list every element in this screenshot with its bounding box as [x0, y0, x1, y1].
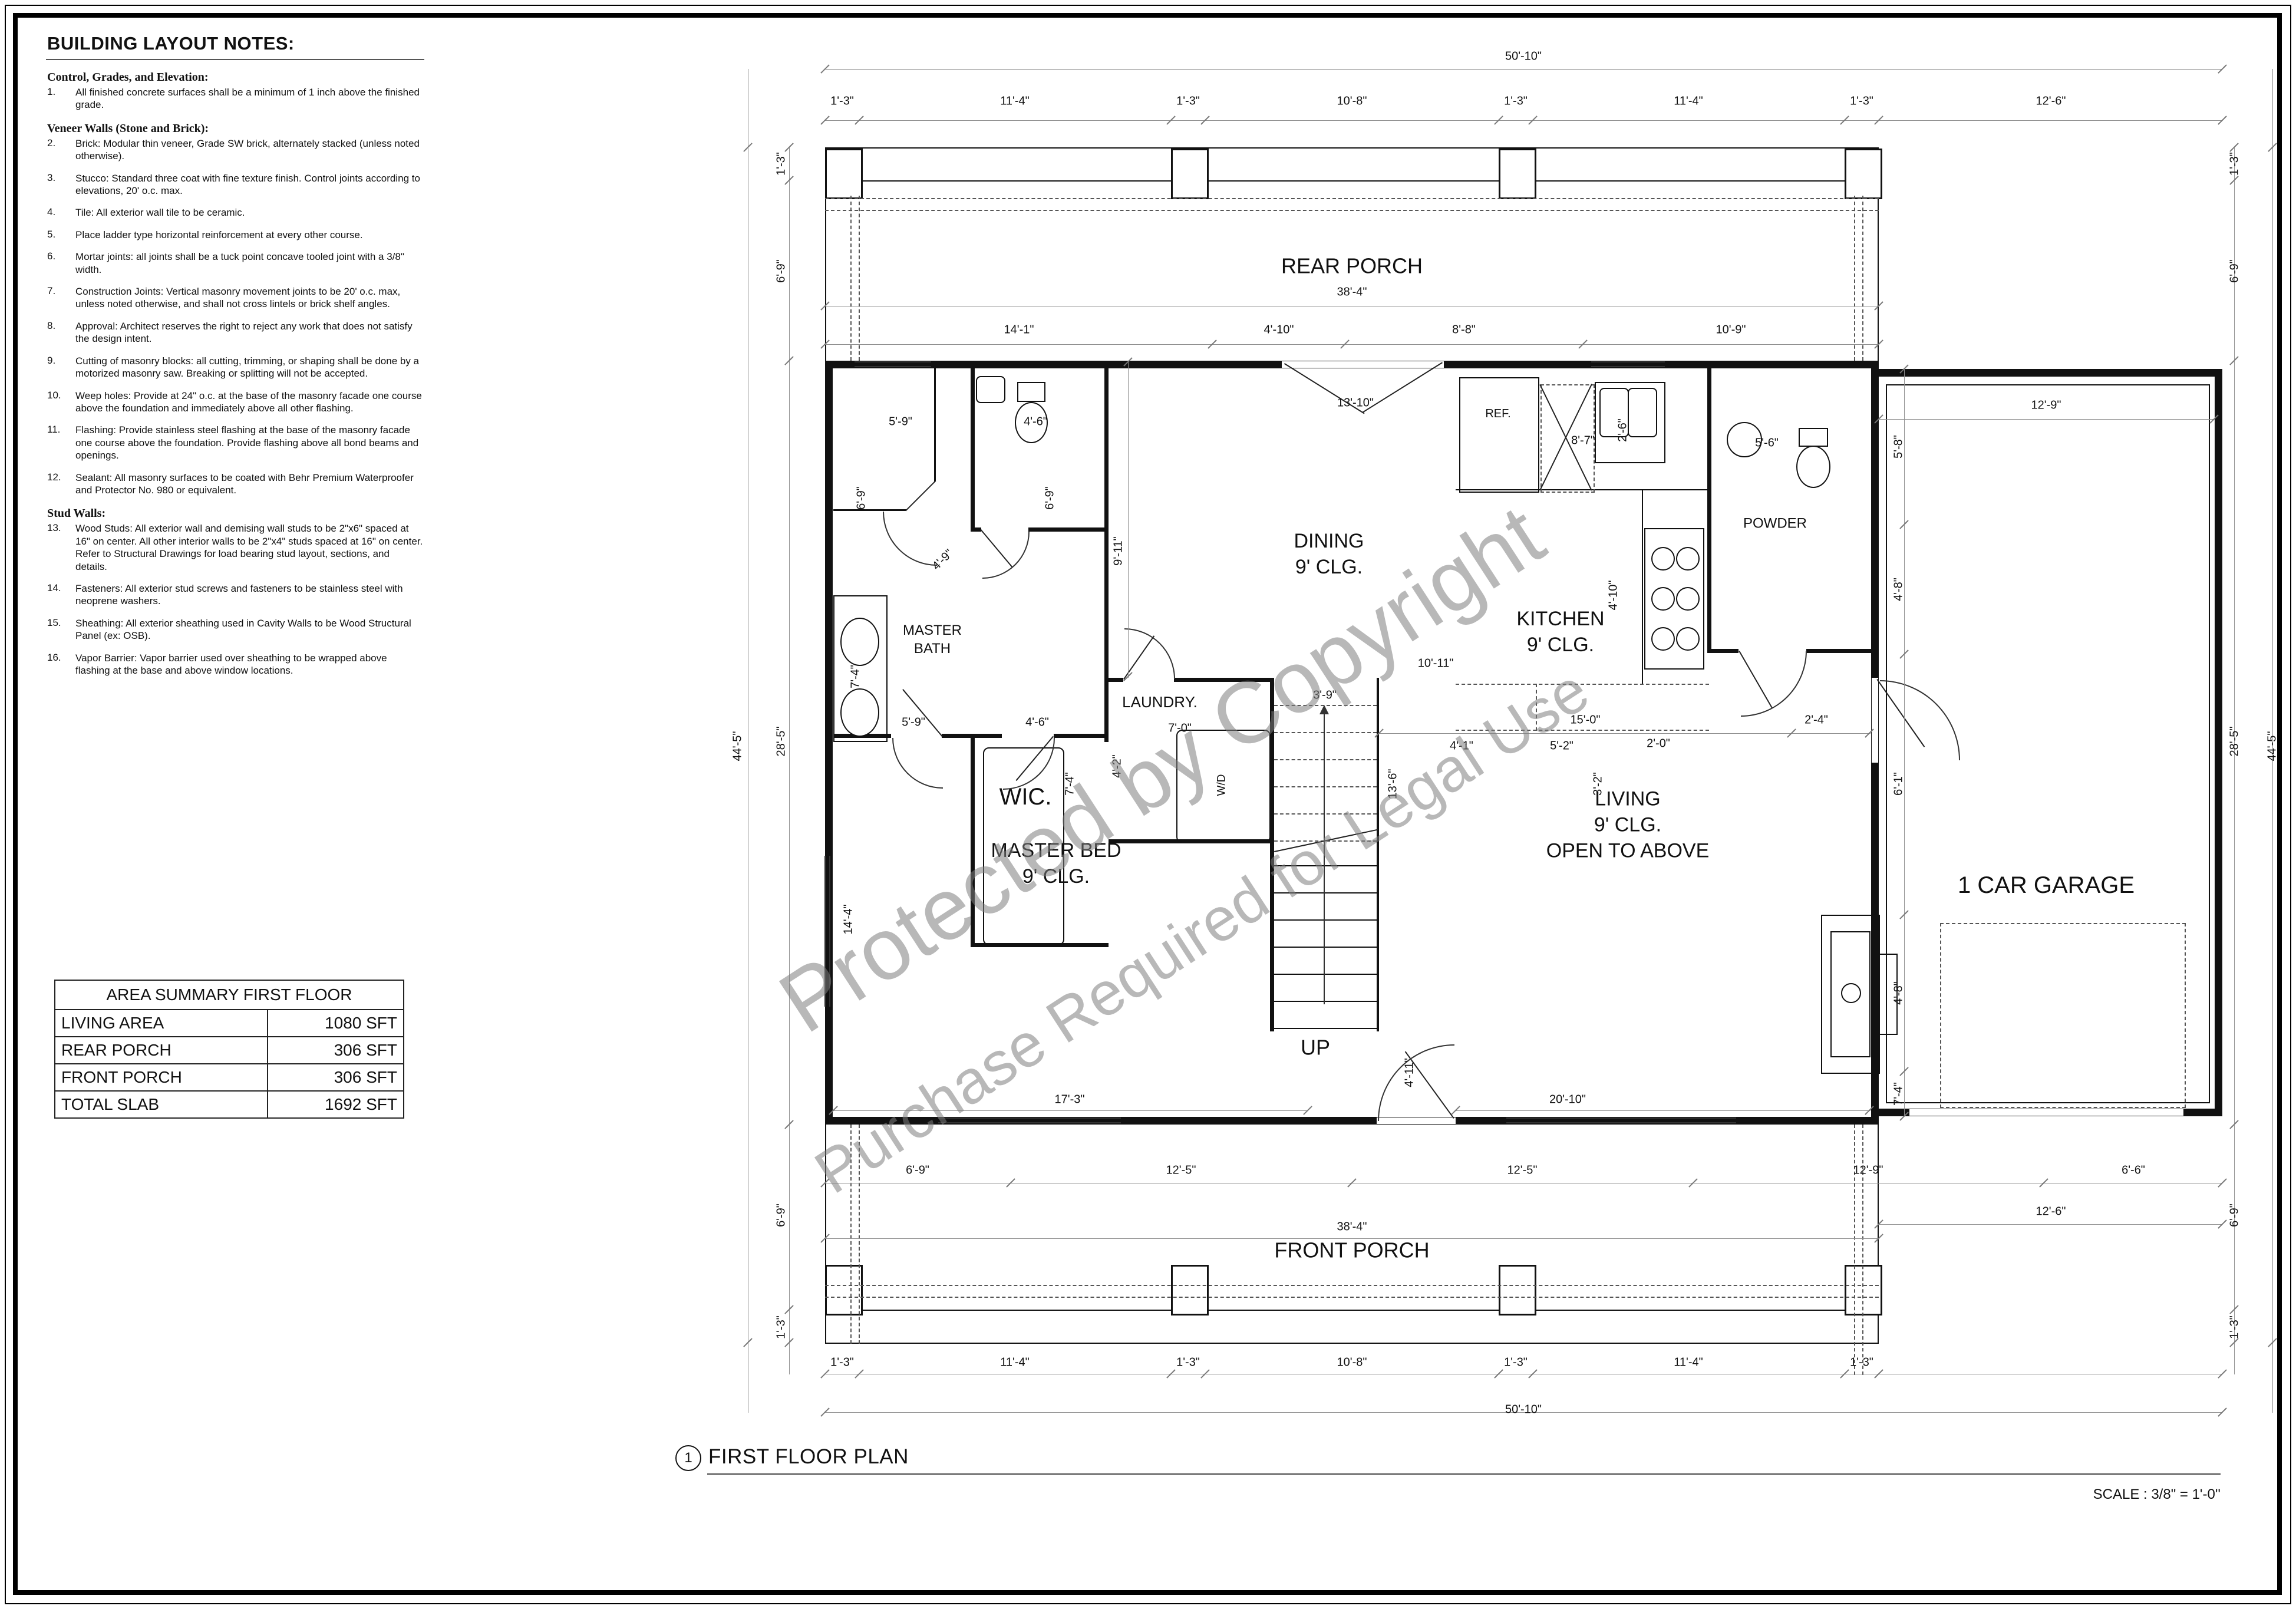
- table-row: TOTAL SLAB 1692 SFT: [55, 1091, 404, 1118]
- area-summary-table: AREA SUMMARY FIRST FLOOR LIVING AREA 108…: [54, 980, 404, 1119]
- dim-label: 5'-6": [1755, 437, 1779, 450]
- area-value: 306 SFT: [268, 1037, 404, 1064]
- note-text: Wood Studs: All exterior wall and demisi…: [75, 522, 423, 573]
- stove-burner: [1676, 547, 1700, 571]
- note-text: Fasteners: All exterior stud screws and …: [75, 582, 423, 608]
- wall-garage-right: [2215, 369, 2222, 1116]
- dim-label: 12'-5": [1507, 1164, 1538, 1178]
- dim-label: 1'-3": [775, 1315, 789, 1339]
- dimension-line: [825, 1183, 2222, 1183]
- dim-label: 28'-5": [2228, 727, 2242, 757]
- room-label-kitchen: KITCHEN 9' CLG.: [1516, 606, 1604, 658]
- dim-label: 11'-4": [1674, 95, 1703, 108]
- dim-label: 20'-10": [1549, 1093, 1586, 1107]
- dashed-beam-line: [825, 1297, 1879, 1298]
- note-number: 16.: [47, 652, 75, 677]
- porch-edge-line: [825, 1310, 1879, 1311]
- note-item: 5.Place ladder type horizontal reinforce…: [47, 229, 428, 241]
- note-number: 11.: [47, 424, 75, 461]
- window: [1506, 1117, 1736, 1119]
- notes-body: Control, Grades, and Elevation:1.All fin…: [46, 71, 428, 677]
- dim-label: 1'-3": [830, 95, 854, 108]
- toilet-bowl: [1796, 446, 1830, 488]
- vanity-sink: [840, 688, 879, 737]
- dimension-line: [2234, 147, 2235, 1374]
- porch-column: [1845, 149, 1882, 199]
- dim-label: 4'-11": [1403, 1058, 1417, 1087]
- porch-edge-line: [825, 180, 1879, 182]
- fireplace-flue: [1841, 983, 1861, 1003]
- note-text: Sheathing: All exterior sheathing used i…: [75, 617, 423, 642]
- dim-label: 11'-4": [1000, 95, 1029, 108]
- title-underline: [707, 1473, 2221, 1475]
- dimension-line: [825, 1238, 1879, 1239]
- dim-label: 50'-10": [1505, 1403, 1542, 1417]
- notes-title: BUILDING LAYOUT NOTES:: [46, 33, 424, 60]
- dim-label: 6'-9": [1044, 486, 1057, 510]
- dim-label: 1'-3": [830, 1356, 854, 1370]
- dim-label: 6'-9": [855, 486, 869, 510]
- sheet-number-badge: 1: [675, 1445, 701, 1471]
- note-text: Brick: Modular thin veneer, Grade SW bri…: [75, 137, 423, 163]
- dim-label: 1'-3": [1850, 95, 1873, 108]
- note-item: 6.Mortar joints: all joints shall be a t…: [47, 250, 428, 276]
- wc-sink: [976, 376, 1005, 403]
- dim-label: 11'-4": [1674, 1356, 1703, 1370]
- stair-tread-dashed: [1274, 759, 1377, 760]
- sink-basin: [1628, 388, 1657, 437]
- note-item: 7.Construction Joints: Vertical masonry …: [47, 285, 428, 311]
- note-text: Vapor Barrier: Vapor barrier used over s…: [75, 652, 423, 677]
- note-text: Weep holes: Provide at 24" o.c. at the b…: [75, 390, 423, 415]
- stair-tread: [1274, 974, 1377, 975]
- porch-column: [825, 1265, 863, 1315]
- wall-powder-bottom: [1707, 649, 1739, 653]
- note-text: All finished concrete surfaces shall be …: [75, 86, 423, 111]
- note-number: 15.: [47, 617, 75, 642]
- dim-label: 1'-3": [1504, 95, 1528, 108]
- note-number: 4.: [47, 206, 75, 219]
- stove-burner: [1676, 587, 1700, 611]
- dim-label: 12'-9": [2031, 399, 2061, 413]
- area-label: LIVING AREA: [55, 1010, 268, 1037]
- wall-garage-top: [1871, 369, 2222, 377]
- dim-label: 12'-6": [2036, 95, 2066, 108]
- dim-label: 7'-4": [1892, 1082, 1906, 1106]
- stove-burner: [1676, 627, 1700, 651]
- stove-burner: [1651, 627, 1675, 651]
- dim-label: 4'-10": [1607, 581, 1621, 611]
- dim-label: 6'-9": [2228, 259, 2242, 283]
- area-value: 1080 SFT: [268, 1010, 404, 1037]
- dimension-line: [1879, 419, 2214, 420]
- wall-wc-bottom: [1028, 527, 1109, 532]
- note-item: 8.Approval: Architect reserves the right…: [47, 320, 428, 345]
- room-label-dining: DINING 9' CLG.: [1294, 528, 1364, 580]
- porch-column: [1171, 149, 1209, 199]
- toilet-tank-powder: [1799, 428, 1828, 447]
- dimension-line: [825, 69, 2222, 70]
- dim-label: 1'-3": [1176, 95, 1200, 108]
- dimension-line: [748, 69, 748, 1413]
- note-item: 2.Brick: Modular thin veneer, Grade SW b…: [47, 137, 428, 163]
- dim-label: 17'-3": [1055, 1093, 1085, 1107]
- area-value: 306 SFT: [268, 1064, 404, 1091]
- dimension-line: [825, 306, 1879, 306]
- dimension-line: [1879, 1224, 2222, 1225]
- note-number: 12.: [47, 472, 75, 497]
- dashed-beam-line: [825, 1285, 1879, 1286]
- dim-label: 38'-4": [1337, 1221, 1367, 1234]
- porch-column: [825, 149, 863, 199]
- drawing-title: FIRST FLOOR PLAN: [708, 1445, 909, 1469]
- porch-column: [1845, 1265, 1882, 1315]
- dim-label: 28'-5": [775, 727, 789, 757]
- stair-tread: [1274, 919, 1377, 921]
- refrigerator: [1459, 377, 1539, 493]
- note-text: Stucco: Standard three coat with fine te…: [75, 172, 423, 197]
- dim-label: 13'-10": [1337, 397, 1374, 410]
- table-row: REAR PORCH 306 SFT: [55, 1037, 404, 1064]
- dashed-post-line: [859, 196, 860, 361]
- opening-dining-doors: [1282, 361, 1444, 368]
- note-text: Cutting of masonry blocks: all cutting, …: [75, 355, 423, 380]
- room-label-powder: POWDER: [1743, 514, 1807, 532]
- dashed-beam-line: [825, 210, 1879, 211]
- dim-label: 10'-8": [1337, 95, 1367, 108]
- vanity-sink: [840, 618, 879, 666]
- dim-label: 44'-5": [731, 731, 745, 761]
- dim-label: 2'-0": [1647, 737, 1670, 751]
- note-text: Flashing: Provide stainless steel flashi…: [75, 424, 423, 461]
- dimension-line: [1128, 362, 1129, 678]
- dim-label: 10'-9": [1716, 324, 1746, 337]
- dim-label: 6'-1": [1892, 772, 1906, 796]
- dashed-post-line: [1854, 196, 1855, 361]
- dimension-line: [825, 344, 1879, 345]
- porch-edge-line: [1642, 490, 1643, 684]
- dim-label: 6'-9": [906, 1164, 929, 1178]
- area-label: REAR PORCH: [55, 1037, 268, 1064]
- opening-garage-door: [1909, 1109, 2183, 1116]
- window: [1591, 366, 1665, 367]
- note-number: 8.: [47, 320, 75, 345]
- note-text: Sealant: All masonry surfaces to be coat…: [75, 472, 423, 497]
- dashed-post-line: [1862, 1125, 1863, 1375]
- stove-burner: [1651, 587, 1675, 611]
- window: [1506, 1122, 1736, 1123]
- dim-label: 1'-3": [1850, 1356, 1873, 1370]
- note-item: 11.Flashing: Provide stainless steel fla…: [47, 424, 428, 461]
- note-item: 10.Weep holes: Provide at 24" o.c. at th…: [47, 390, 428, 415]
- porch-edge-line: [825, 1343, 1879, 1344]
- dimension-line: [825, 120, 2222, 121]
- porch-column: [1499, 149, 1536, 199]
- table-row: LIVING AREA 1080 SFT: [55, 1010, 404, 1037]
- area-label: TOTAL SLAB: [55, 1091, 268, 1118]
- dim-label: 12'-6": [2036, 1205, 2066, 1219]
- note-text: Construction Joints: Vertical masonry mo…: [75, 285, 423, 311]
- wall-bath-right: [1104, 361, 1109, 742]
- note-number: 3.: [47, 172, 75, 197]
- note-number: 13.: [47, 522, 75, 573]
- dim-label: 14'-1": [1004, 324, 1034, 337]
- wall-shower-front: [833, 509, 906, 511]
- table-row: FRONT PORCH 306 SFT: [55, 1064, 404, 1091]
- stair-tread: [1274, 1028, 1377, 1029]
- stair-tread: [1274, 1001, 1377, 1002]
- dim-label: 3'-2": [1592, 772, 1605, 796]
- wall-powder-left: [1707, 361, 1711, 653]
- stairs-up-label: UP: [1301, 1034, 1330, 1062]
- dim-label: 12'-9": [1853, 1164, 1883, 1178]
- note-number: 7.: [47, 285, 75, 311]
- dim-label: 44'-5": [2266, 731, 2279, 761]
- porch-edge-line: [825, 147, 1879, 149]
- garage-door-zone: [1940, 923, 2186, 1108]
- wall-bath-bottom: [1054, 734, 1109, 738]
- note-item: 4.Tile: All exterior wall tile to be cer…: [47, 206, 428, 219]
- dim-label: 8'-7": [1571, 434, 1595, 448]
- dim-label: 1'-3": [1176, 1356, 1200, 1370]
- window: [1591, 361, 1665, 362]
- note-text: Tile: All exterior wall tile to be ceram…: [75, 206, 423, 219]
- room-label-living: LIVING 9' CLG. OPEN TO ABOVE: [1546, 786, 1710, 865]
- room-label-master-bath: MASTER BATH: [903, 621, 962, 658]
- wall-laundry-top: [1109, 678, 1123, 682]
- window: [855, 361, 931, 362]
- wall-shower-side: [934, 361, 936, 482]
- note-item: 9.Cutting of masonry blocks: all cutting…: [47, 355, 428, 380]
- dim-label: 4'-8": [1892, 578, 1906, 601]
- dashed-beam-line: [825, 198, 1879, 199]
- note-item: 15.Sheathing: All exterior sheathing use…: [47, 617, 428, 642]
- porch-column: [1499, 1265, 1536, 1315]
- dim-label: 38'-4": [1337, 286, 1367, 299]
- note-number: 1.: [47, 86, 75, 111]
- building-layout-notes: BUILDING LAYOUT NOTES: Control, Grades, …: [46, 33, 428, 686]
- window: [855, 366, 931, 367]
- note-number: 14.: [47, 582, 75, 608]
- dim-label: 6'-9": [2228, 1204, 2242, 1227]
- dim-label: 6'-6": [2122, 1164, 2145, 1178]
- toilet-tank-wc: [1017, 382, 1045, 402]
- note-item: 12.Sealant: All masonry surfaces to be c…: [47, 472, 428, 497]
- notes-section-heading: Control, Grades, and Elevation:: [47, 71, 428, 84]
- dim-label: 7'-4": [849, 665, 863, 688]
- note-number: 5.: [47, 229, 75, 241]
- wall-wc-left: [971, 361, 975, 532]
- notes-section-heading: Veneer Walls (Stone and Brick):: [47, 122, 428, 136]
- note-number: 2.: [47, 137, 75, 163]
- dim-label: 6'-9": [775, 259, 789, 283]
- dim-label: 1'-3": [775, 152, 789, 176]
- dim-label: 1'-3": [1504, 1356, 1528, 1370]
- note-item: 3.Stucco: Standard three coat with fine …: [47, 172, 428, 197]
- note-item: 16.Vapor Barrier: Vapor barrier used ove…: [47, 652, 428, 677]
- dashed-post-line: [1862, 196, 1863, 361]
- room-label-rear-porch: REAR PORCH: [1281, 253, 1423, 281]
- dim-label: 6'-9": [775, 1204, 789, 1227]
- area-label: FRONT PORCH: [55, 1064, 268, 1091]
- dim-label: 4'-6": [1024, 416, 1047, 429]
- porch-column: [1171, 1265, 1209, 1315]
- dim-label: 2'-6": [1617, 418, 1630, 442]
- note-number: 9.: [47, 355, 75, 380]
- dim-label: 4'-8": [1892, 981, 1906, 1005]
- area-value: 1692 SFT: [268, 1091, 404, 1118]
- room-label-front-porch: FRONT PORCH: [1274, 1237, 1429, 1265]
- dim-label: 4'-6": [1025, 716, 1049, 730]
- dim-label: 5'-9": [902, 716, 925, 730]
- note-text: Place ladder type horizontal reinforceme…: [75, 229, 423, 241]
- dimension-line: [789, 147, 790, 1374]
- note-text: Mortar joints: all joints shall be a tuc…: [75, 250, 423, 276]
- dim-label: 50'-10": [1505, 50, 1542, 64]
- scale-note: SCALE : 3/8" = 1'-0'': [1939, 1486, 2221, 1503]
- dim-label: 8'-8": [1452, 324, 1476, 337]
- wall-bath-bottom: [942, 734, 1002, 738]
- dim-label: 11'-4": [1000, 1356, 1029, 1370]
- stair-tread: [1274, 947, 1377, 948]
- dim-label: 1'-3": [2228, 1315, 2242, 1339]
- note-number: 6.: [47, 250, 75, 276]
- dimension-line: [825, 1374, 2222, 1374]
- dim-label: 5'-8": [1892, 435, 1906, 459]
- dashed-post-line: [850, 196, 852, 361]
- dim-label: 4'-10": [1264, 324, 1294, 337]
- stove-burner: [1651, 547, 1675, 571]
- note-number: 10.: [47, 390, 75, 415]
- dim-label: 2'-4": [1805, 714, 1828, 727]
- dashed-post-line: [1854, 1125, 1855, 1375]
- note-item: 13.Wood Studs: All exterior wall and dem…: [47, 522, 428, 573]
- note-text: Approval: Architect reserves the right t…: [75, 320, 423, 345]
- dim-label: 10'-8": [1337, 1356, 1367, 1370]
- notes-section-heading: Stud Walls:: [47, 507, 428, 520]
- dimension-line: [1456, 1110, 1871, 1111]
- area-table-title: AREA SUMMARY FIRST FLOOR: [55, 980, 404, 1010]
- note-item: 1.All finished concrete surfaces shall b…: [47, 86, 428, 111]
- note-item: 14.Fasteners: All exterior stud screws a…: [47, 582, 428, 608]
- dim-label: 5'-9": [889, 416, 912, 429]
- dim-label: 1'-3": [2228, 152, 2242, 176]
- opening-garage-hall-door: [1872, 678, 1878, 763]
- wall-powder-bottom: [1806, 649, 1879, 653]
- dim-label: 12'-5": [1166, 1164, 1196, 1178]
- dim-label: 9'-11": [1112, 536, 1126, 565]
